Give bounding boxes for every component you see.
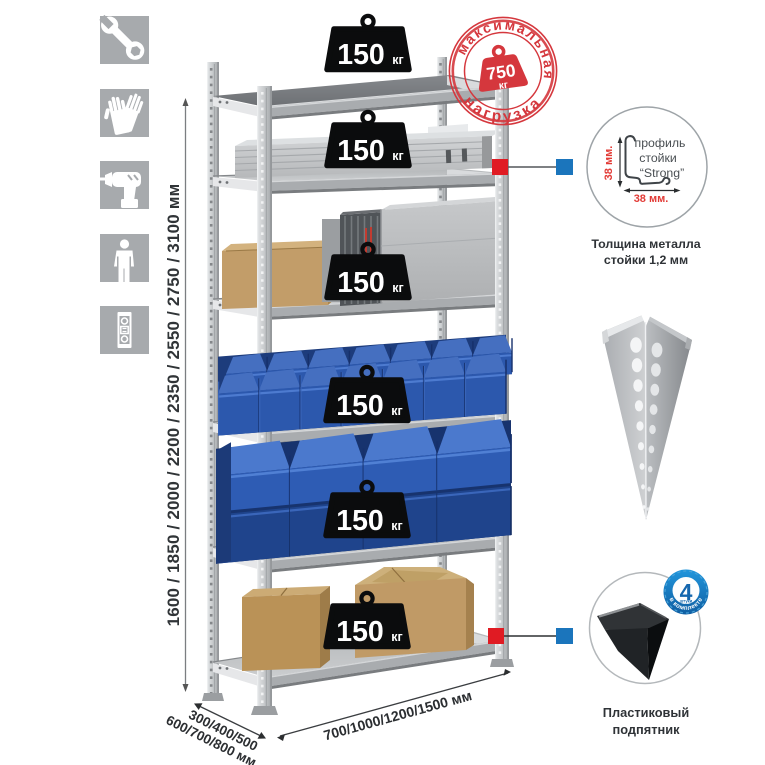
svg-text:38 мм.: 38 мм. [603, 146, 615, 181]
svg-text:кг: кг [392, 281, 403, 295]
svg-text:кг: кг [391, 519, 402, 533]
svg-text:подпятник: подпятник [613, 722, 681, 737]
svg-text:150: 150 [336, 390, 384, 422]
svg-text:150: 150 [336, 505, 384, 537]
svg-text:кг: кг [391, 630, 402, 644]
svg-text:150: 150 [336, 616, 384, 648]
svg-text:стойки 1,2 мм: стойки 1,2 мм [604, 253, 688, 267]
svg-text:кг: кг [392, 149, 403, 163]
svg-text:1600 / 1850 / 2000 / 2200 / 23: 1600 / 1850 / 2000 / 2200 / 2350 / 2550 … [164, 184, 183, 627]
svg-text:Толщина металла: Толщина металла [591, 237, 700, 251]
svg-text:кг: кг [392, 53, 403, 67]
svg-text:кг: кг [498, 80, 509, 92]
svg-text:150: 150 [337, 267, 385, 299]
svg-text:стойки: стойки [639, 151, 677, 165]
svg-text:кг: кг [391, 404, 402, 418]
svg-text:штуки: штуки [680, 599, 693, 604]
svg-text:“Strong”: “Strong” [640, 166, 684, 180]
svg-text:150: 150 [337, 135, 385, 167]
svg-text:Пластиковый: Пластиковый [603, 705, 689, 720]
svg-text:38 мм.: 38 мм. [634, 193, 669, 205]
svg-text:профиль: профиль [635, 136, 686, 150]
svg-text:150: 150 [337, 39, 385, 71]
